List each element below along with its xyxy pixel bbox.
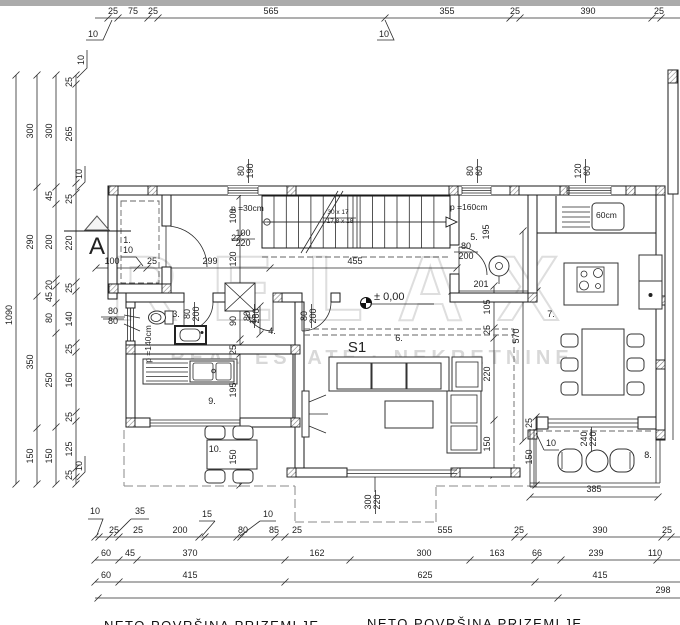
wall-pillar — [287, 468, 296, 477]
dimension-label: 415 — [182, 570, 197, 580]
zone-label: S1 — [348, 339, 366, 356]
wall-pillar — [162, 284, 171, 293]
wall-pillar — [510, 186, 519, 195]
annotation-label: p =140cm — [143, 325, 153, 363]
dimension-label: 25 — [510, 6, 520, 16]
wall-segment — [668, 70, 678, 194]
room-number: 4. — [268, 326, 276, 336]
annotation-label: p =30cm — [231, 203, 264, 213]
dimension-label: 625 — [417, 570, 432, 580]
wc-toilet — [149, 311, 174, 324]
dimension-label: 565 — [263, 6, 278, 16]
opening-size-label: 80 — [108, 316, 118, 326]
dimension-label: 25 — [662, 525, 672, 535]
wall-pillar — [528, 293, 537, 302]
wall-segment — [457, 468, 520, 477]
room-number: 3. — [172, 309, 180, 319]
dimension-label: 120 — [228, 251, 238, 266]
dimension-label: 150 — [25, 448, 35, 463]
room-number: 6. — [395, 333, 403, 343]
dimension-label: 415 — [592, 570, 607, 580]
wall-pillar — [109, 284, 118, 293]
opening-size-label: 60 — [582, 166, 592, 176]
dimension-label: 350 — [25, 354, 35, 369]
dimension-label: 385 — [586, 484, 601, 494]
kitchen-counter — [143, 359, 237, 384]
drawing-title: NETO POVRŠINA PRIZEMLJE — [367, 616, 583, 625]
annotation-label: 60cm — [596, 210, 617, 220]
dimension-label: 195 — [481, 224, 491, 239]
dimension-label: 25 — [654, 6, 664, 16]
dimension-label: 355 — [439, 6, 454, 16]
wall-pillar — [511, 468, 520, 477]
dimension-label: 455 — [347, 256, 362, 266]
wall-pillar — [126, 345, 135, 354]
dimension-label: 150 — [524, 449, 534, 464]
dimension-label: 265 — [64, 126, 74, 141]
watermark-text: RELAX — [111, 238, 593, 340]
dimension-label: 25 — [514, 525, 524, 535]
room-number: 10. — [209, 444, 222, 454]
dimension-label: 390 — [580, 6, 595, 16]
dimension-label: 25 — [64, 283, 74, 293]
window-120-60 — [567, 187, 611, 194]
leader-label: 15 — [202, 509, 212, 519]
dimension-label: 300 — [44, 123, 54, 138]
wall-pillar — [109, 186, 118, 195]
wall-pillar — [451, 468, 460, 477]
terrace-round-table-set — [558, 449, 634, 472]
room-number: 7. — [547, 309, 555, 319]
dimension-label: 200 — [44, 234, 54, 249]
dimension-label: 160 — [64, 372, 74, 387]
room-number: 5. — [470, 232, 478, 242]
viewport-edge-strip — [0, 0, 680, 6]
dimension-label: 25 — [524, 418, 534, 428]
floor-plan-canvas: RELAXREAL ESTATE · NEKRETNINE — [0, 0, 680, 625]
leader-label: 10 — [263, 509, 273, 519]
leader-label: 10 — [379, 29, 389, 39]
section-letter: A — [89, 233, 105, 260]
wall-segment — [108, 186, 117, 299]
dimension-label: 25 — [64, 77, 74, 87]
dimension-label: 125 — [64, 441, 74, 456]
dimension-label: 45 — [44, 191, 54, 201]
dimension-label: 555 — [437, 525, 452, 535]
wall-segment — [162, 195, 171, 226]
opening-size-label: 200 — [191, 306, 201, 321]
dimension-label: 25 — [109, 525, 119, 535]
window-80-190 — [228, 187, 258, 194]
wall-segment — [528, 195, 537, 302]
dimension-label: 80 — [238, 525, 248, 535]
wall-pillar — [626, 186, 635, 195]
wall-pillar — [668, 70, 677, 83]
dimension-label: 150 — [44, 448, 54, 463]
opening-size-label: 60 — [474, 166, 484, 176]
opening-size-label: 80 — [108, 306, 118, 316]
room-number: 1. — [123, 235, 131, 245]
dimension-label: 220 — [64, 235, 74, 250]
dimension-label: 45 — [125, 548, 135, 558]
dimension-label: 1090 — [4, 305, 14, 325]
opening-size-label: 80 — [461, 241, 471, 251]
dimension-label: 390 — [592, 525, 607, 535]
leader-label: 10 — [546, 438, 556, 448]
dimension-label: 299 — [202, 256, 217, 266]
leader-label: 10 — [123, 245, 133, 255]
dimension-label: 80 — [44, 313, 54, 323]
room-number: 9. — [208, 396, 216, 406]
wall-pillar — [291, 345, 300, 354]
dimension-label: 25 — [64, 194, 74, 204]
dimension-label: 60 — [101, 570, 111, 580]
wall-segment — [282, 293, 302, 302]
opening-size-label: 220 — [372, 494, 382, 509]
dimension-label: 25 — [482, 325, 492, 335]
dimension-label: 105 — [482, 299, 492, 314]
dimension-label: 25 — [228, 345, 238, 355]
leader-label: 10 — [88, 29, 98, 39]
wardrobe-shaft — [225, 283, 255, 311]
dimension-label: 220 — [482, 366, 492, 381]
leader-label: 35 — [135, 506, 145, 516]
wall-pillar — [273, 293, 282, 302]
dimension-label: 20 — [44, 280, 54, 290]
dimension-label: 45 — [44, 292, 54, 302]
dimension-label: 90 — [228, 316, 238, 326]
wall-segment — [638, 417, 656, 429]
drawing-title: NETO POVRŠINA PRIZEMLJE — [104, 618, 320, 625]
leader-label: 10 — [74, 461, 84, 471]
dimension-label: 25 — [108, 6, 118, 16]
room-number: 2. — [231, 233, 239, 243]
dimension-label: 66 — [532, 548, 542, 558]
opening-size-label: 200 — [308, 308, 318, 323]
opening-size-label: 200 — [458, 251, 473, 261]
dimension-label: 290 — [25, 234, 35, 249]
dimension-label: 300 — [25, 123, 35, 138]
kitchen-island-cooktop — [564, 263, 618, 305]
dimension-label: 100 — [104, 256, 119, 266]
dimension-label: 195 — [228, 382, 238, 397]
annotation-label: p =160cm — [450, 202, 488, 212]
wall-pillar — [148, 186, 157, 195]
dimension-label: 370 — [182, 548, 197, 558]
dimension-label: 163 — [489, 548, 504, 558]
elevation-label: ± 0,00 — [374, 291, 405, 303]
room-number: 8. — [644, 450, 652, 460]
dimension-label: 25 — [133, 525, 143, 535]
window-80-60 — [462, 187, 491, 194]
dimension-label: 200 — [172, 525, 187, 535]
leader-label: 10 — [76, 55, 86, 65]
tall-cabinet-oven — [639, 255, 662, 309]
wall-segment — [656, 195, 665, 440]
dimension-label: 162 — [309, 548, 324, 558]
wall-pillar — [449, 186, 458, 195]
dimension-label: 140 — [64, 311, 74, 326]
wall-pillar — [656, 186, 665, 195]
opening-size-label: 190 — [245, 163, 255, 178]
wall-pillar — [656, 360, 665, 369]
dining-table-chairs — [561, 329, 644, 395]
wall-segment — [331, 293, 340, 302]
dimension-label: 25 — [148, 6, 158, 16]
opening-size-label: 200 — [251, 308, 261, 323]
dimension-label: 201 — [473, 279, 488, 289]
dimension-label: 25 — [64, 412, 74, 422]
annotation-label: 30 x 17 — [327, 209, 349, 216]
dimension-label: 25 — [64, 470, 74, 480]
wall-segment — [295, 468, 347, 477]
dimension-label: 75 — [128, 6, 138, 16]
dimension-label: 300 — [416, 548, 431, 558]
wall-pillar — [291, 418, 300, 427]
dimension-label: 25 — [292, 525, 302, 535]
wall-pillar — [528, 430, 537, 439]
washbasin — [175, 326, 206, 344]
dimension-label: 570 — [511, 328, 521, 343]
wall-segment — [126, 293, 184, 302]
dimension-label: 150 — [228, 449, 238, 464]
opening-size-label: 220 — [588, 431, 598, 446]
dimension-label: 25 — [147, 256, 157, 266]
dimension-label: 298 — [655, 585, 670, 595]
leader-label: 10 — [90, 506, 100, 516]
annotation-label: 17,8 x 18 — [327, 218, 354, 225]
wall-pillar — [126, 418, 135, 427]
dimension-label: 150 — [482, 436, 492, 451]
wall-segment — [295, 302, 304, 477]
dimension-label: 239 — [588, 548, 603, 558]
coffee-table — [385, 401, 433, 428]
dimension-label: 250 — [44, 372, 54, 387]
dimension-label: 85 — [269, 525, 279, 535]
wall-pillar — [656, 430, 665, 439]
wall-pillar — [287, 186, 296, 195]
dimension-label: 110 — [648, 548, 662, 558]
wall-segment — [450, 293, 537, 302]
dimension-label: 25 — [64, 344, 74, 354]
wall-segment — [537, 417, 548, 429]
dimension-label: 60 — [101, 548, 111, 558]
leader-label: 10 — [74, 169, 84, 179]
